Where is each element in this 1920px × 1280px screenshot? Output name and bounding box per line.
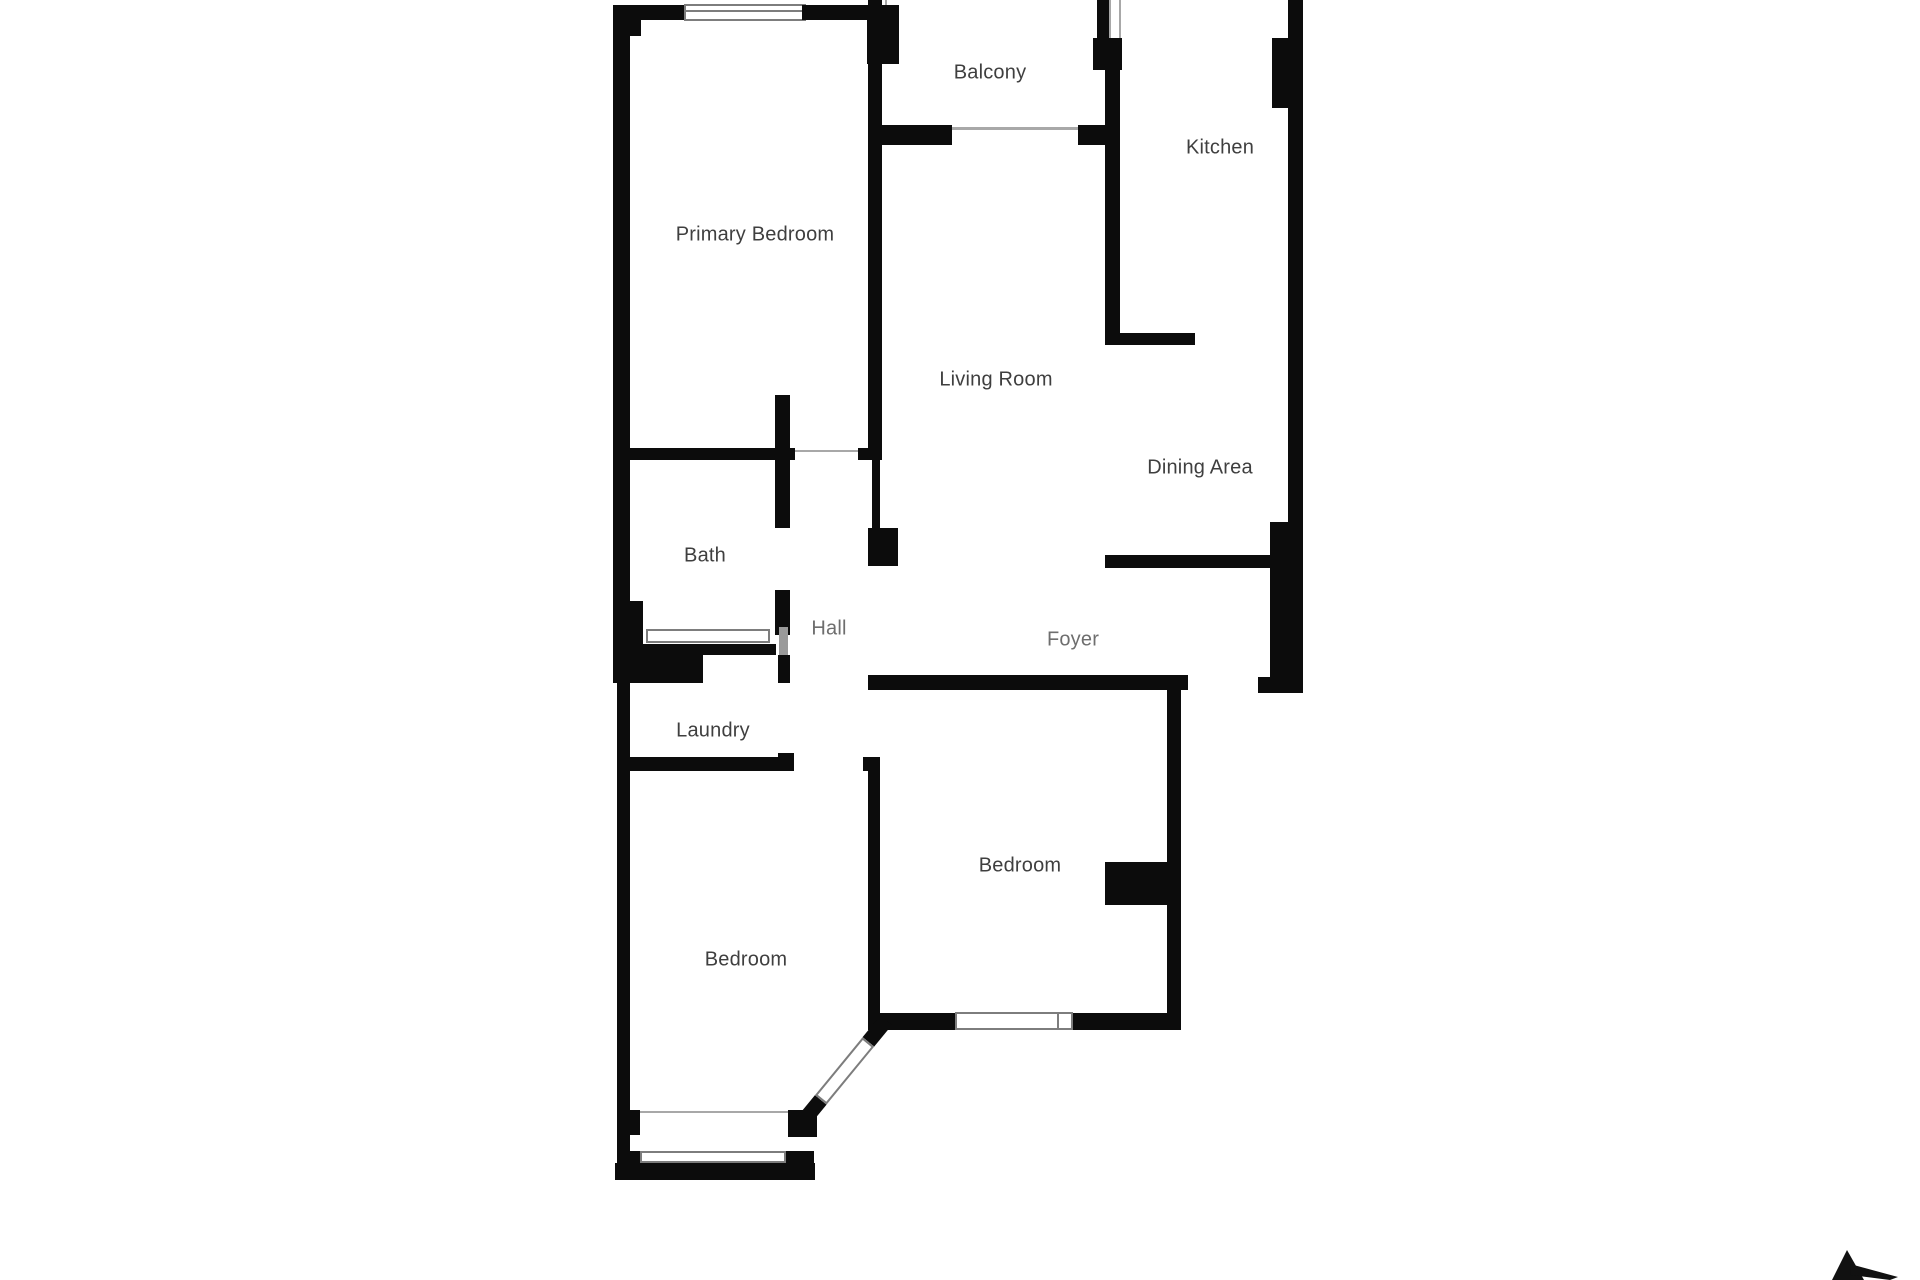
wall — [868, 757, 880, 1020]
room-label-dining-area: Dining Area — [1147, 457, 1253, 480]
bath-vanity — [646, 629, 770, 643]
wall — [613, 5, 630, 601]
wall — [617, 757, 793, 771]
wall — [1105, 70, 1120, 345]
wall — [1097, 0, 1109, 40]
wall — [643, 644, 776, 655]
north-arrow-icon — [1800, 1238, 1920, 1280]
bay-opening-line — [640, 1111, 788, 1113]
wall — [870, 125, 952, 145]
room-label-kitchen: Kitchen — [1186, 137, 1254, 160]
wall — [613, 5, 688, 20]
balcony-door-line — [952, 127, 1078, 130]
room-label-living-room: Living Room — [939, 369, 1052, 392]
wall — [1105, 555, 1270, 568]
room-label-hall: Hall — [811, 618, 846, 641]
wall — [775, 395, 790, 528]
room-label-foyer: Foyer — [1047, 629, 1099, 652]
wall — [1258, 677, 1303, 693]
room-label-primary-bedroom: Primary Bedroom — [676, 224, 835, 247]
wall-edge-line — [1109, 0, 1111, 40]
wall — [778, 655, 790, 683]
wall — [1272, 38, 1303, 108]
window — [684, 4, 806, 21]
wall — [858, 448, 882, 460]
wall — [1270, 522, 1303, 693]
room-label-bath: Bath — [684, 545, 726, 568]
room-label-laundry: Laundry — [676, 720, 750, 743]
door-opening-line — [795, 450, 858, 452]
wall — [613, 448, 795, 460]
wall — [1110, 333, 1195, 345]
wall — [868, 0, 882, 460]
wall — [868, 528, 898, 566]
bay-diagonal — [797, 1016, 892, 1127]
wall-edge-line — [1119, 0, 1121, 40]
wall — [868, 675, 1188, 690]
closet-block — [1105, 862, 1167, 905]
wall — [613, 601, 643, 648]
floor-plan-canvas: Balcony Kitchen Primary Bedroom Living R… — [0, 0, 1920, 1280]
room-label-bedroom-right: Bedroom — [979, 855, 1062, 878]
wall — [615, 1163, 815, 1180]
window-mullion — [686, 10, 804, 12]
room-label-balcony: Balcony — [954, 62, 1027, 85]
wall — [1093, 38, 1122, 70]
wall — [872, 460, 880, 528]
bay-window — [640, 1151, 786, 1163]
wall — [1167, 690, 1181, 1030]
window-mullion — [818, 1040, 863, 1095]
window — [815, 1037, 874, 1104]
wall — [628, 1110, 640, 1135]
room-label-bedroom-left: Bedroom — [705, 949, 788, 972]
window-mullion — [818, 1040, 863, 1095]
window-mullion — [1057, 1014, 1059, 1028]
wall-edge-line — [885, 0, 887, 5]
window — [955, 1012, 1073, 1030]
